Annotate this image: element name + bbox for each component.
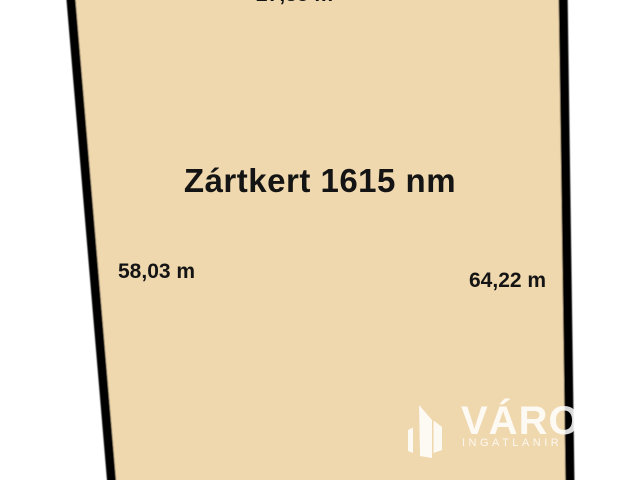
dimension-label-right: 64,22 m <box>469 269 546 293</box>
watermark-subtitle-text: INGATLANIR <box>462 437 562 449</box>
buildings-icon <box>407 403 443 461</box>
dimension-label-top: 27,85 m <box>256 0 333 7</box>
plot-title: Zártkert 1615 nm <box>0 162 640 200</box>
agency-watermark: VÁRO INGATLANIR <box>405 397 640 472</box>
plot-diagram: 27,85 m Zártkert 1615 nm 58,03 m 64,22 m… <box>0 0 640 480</box>
dimension-label-left: 58,03 m <box>118 260 195 284</box>
